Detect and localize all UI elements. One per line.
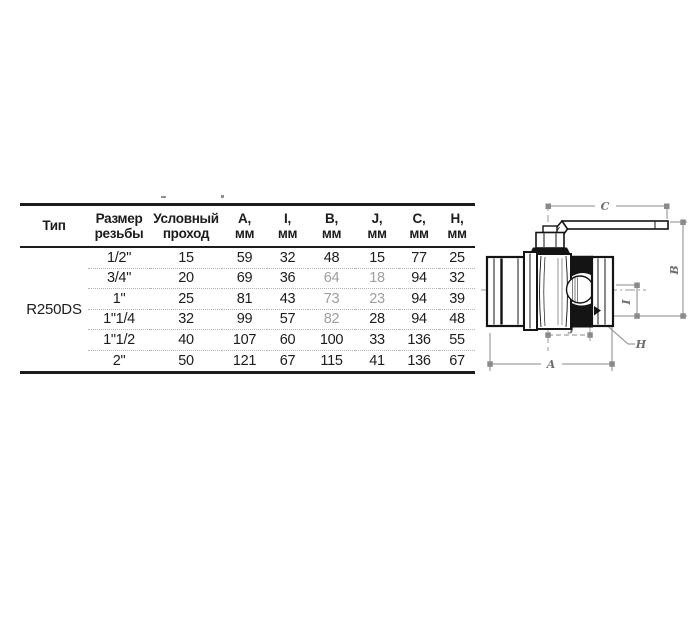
table-cell: 48 xyxy=(439,309,475,330)
valve-technical-drawing: C B I J xyxy=(478,190,700,382)
table-cell: 82 xyxy=(308,309,355,330)
table-cell: 1/2" xyxy=(88,247,150,268)
table-cell: 107 xyxy=(222,330,267,351)
table-cell: 77 xyxy=(399,247,439,268)
ball-housing-bottom xyxy=(571,303,593,328)
table-cell: 136 xyxy=(399,350,439,372)
table-row: 3/4"20693664189432 xyxy=(20,268,475,289)
right-end-cap xyxy=(592,257,613,326)
table-row: 1"25814373239439 xyxy=(20,289,475,310)
table-cell: 69 xyxy=(222,268,267,289)
table-cell: 28 xyxy=(355,309,399,330)
valve-spec-table: Тип Размеррезьбы Условныйпроход A,мм I,м… xyxy=(20,203,475,374)
valve-handle xyxy=(562,221,668,229)
type-value: R250DS xyxy=(20,247,88,372)
ball-housing-top xyxy=(571,256,593,277)
table-cell: 1"1/4 xyxy=(88,309,150,330)
table-cell: 136 xyxy=(399,330,439,351)
table-cell: 59 xyxy=(222,247,267,268)
valve-body xyxy=(487,221,668,330)
table-row: 1"1/240107601003313655 xyxy=(20,330,475,351)
table-cell: 36 xyxy=(267,268,308,289)
spec-table-body: R250DS1/2"155932481577253/4"206936641894… xyxy=(20,247,475,372)
col-header-thread-size: Размеррезьбы xyxy=(88,205,150,248)
table-cell: 41 xyxy=(355,350,399,372)
col-header-type: Тип xyxy=(20,205,88,248)
table-cell: 1"1/2 xyxy=(88,330,150,351)
dim-label-i: I xyxy=(620,299,633,306)
table-cell: 115 xyxy=(308,350,355,372)
dim-label-c: C xyxy=(601,200,610,213)
table-cell: 67 xyxy=(267,350,308,372)
table-cell: 32 xyxy=(439,268,475,289)
table-cell: 1" xyxy=(88,289,150,310)
table-cell: 33 xyxy=(355,330,399,351)
table-cell: 121 xyxy=(222,350,267,372)
table-cell: 94 xyxy=(399,309,439,330)
table-cell: 39 xyxy=(439,289,475,310)
table-cell: 55 xyxy=(439,330,475,351)
table-cell: 23 xyxy=(355,289,399,310)
catalog-page: Тип Размеррезьбы Условныйпроход A,мм I,м… xyxy=(0,0,700,617)
print-artifact xyxy=(221,195,224,198)
table-row: 2"50121671154113667 xyxy=(20,350,475,372)
table-cell: 100 xyxy=(308,330,355,351)
col-header-c-mm: C,мм xyxy=(399,205,439,248)
col-header-h-mm: H,мм xyxy=(439,205,475,248)
table-cell: 50 xyxy=(150,350,222,372)
dim-label-h: H xyxy=(635,338,647,351)
table-cell: 81 xyxy=(222,289,267,310)
dim-label-a: A xyxy=(546,358,556,371)
col-header-j-mm: J,мм xyxy=(355,205,399,248)
table-cell: 99 xyxy=(222,309,267,330)
table-cell: 15 xyxy=(355,247,399,268)
table-cell: 43 xyxy=(267,289,308,310)
col-header-a-mm: A,мм xyxy=(222,205,267,248)
body-center xyxy=(537,254,571,329)
table-cell: 48 xyxy=(308,247,355,268)
table-cell: 94 xyxy=(399,289,439,310)
valve-stem xyxy=(543,226,557,233)
table-cell: 3/4" xyxy=(88,268,150,289)
table-cell: 18 xyxy=(355,268,399,289)
table-cell: 67 xyxy=(439,350,475,372)
table-cell: 32 xyxy=(267,247,308,268)
table-cell: 15 xyxy=(150,247,222,268)
table-cell: 25 xyxy=(150,289,222,310)
table-cell: 60 xyxy=(267,330,308,351)
stem-nut xyxy=(536,233,564,249)
table-cell: 40 xyxy=(150,330,222,351)
col-header-nominal-bore: Условныйпроход xyxy=(150,205,222,248)
print-artifact xyxy=(161,196,166,198)
table-row: 1"1/432995782289448 xyxy=(20,309,475,330)
table-row: R250DS1/2"15593248157725 xyxy=(20,247,475,268)
col-header-b-mm: B,мм xyxy=(308,205,355,248)
table-header: Тип Размеррезьбы Условныйпроход A,мм I,м… xyxy=(20,205,475,248)
table-cell: 64 xyxy=(308,268,355,289)
table-cell: 25 xyxy=(439,247,475,268)
col-header-i-mm: I,мм xyxy=(267,205,308,248)
dim-label-b: B xyxy=(668,265,681,275)
table-cell: 2" xyxy=(88,350,150,372)
table-cell: 57 xyxy=(267,309,308,330)
ball xyxy=(567,276,594,303)
table-cell: 94 xyxy=(399,268,439,289)
table-cell: 73 xyxy=(308,289,355,310)
table-cell: 20 xyxy=(150,268,222,289)
table-cell: 32 xyxy=(150,309,222,330)
